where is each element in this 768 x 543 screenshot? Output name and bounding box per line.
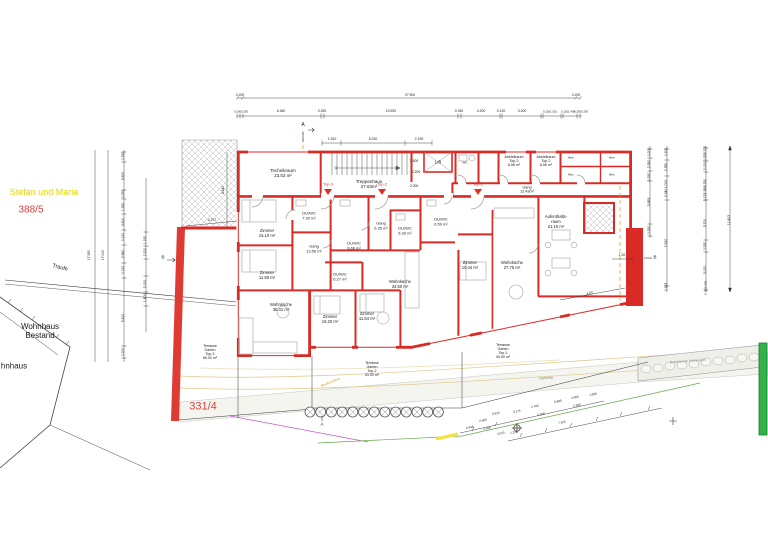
dim-label: 0.250 xyxy=(648,173,652,182)
floor-plan-drawing: Technikraum 23.53 m²Treppenhaus 27.63m²L… xyxy=(0,0,768,543)
dim-label: 0.250 xyxy=(455,110,464,114)
dim-label: 0.200 xyxy=(648,148,652,157)
room-zimmer-1190: Zimmer 11.90 m² xyxy=(259,271,275,281)
unit-marker-top2: Top-2 xyxy=(377,183,387,188)
dim-label: 3.200 xyxy=(477,110,486,114)
existing-house-label-cut: hnhaus xyxy=(1,361,27,370)
parcel-331-4: 331/4 xyxy=(189,401,217,414)
dim-label: 1.000 xyxy=(665,180,669,189)
dim-label: 0.438 xyxy=(466,426,474,431)
dim-label: 2.000 xyxy=(144,280,148,289)
unit-marker-top1: Top-1 xyxy=(473,183,483,188)
room-zimmer-1184: Zimmer 11.84 m² xyxy=(359,312,375,322)
dim-label: 0.2500.250 xyxy=(574,110,588,113)
dim-label: 0.200 xyxy=(665,148,669,157)
room-gang-og: Gang 12.43m² xyxy=(520,186,534,195)
dim-label: 0.250 xyxy=(122,190,126,199)
dim-label: 0.200 xyxy=(122,348,126,357)
room-wc: WC xyxy=(463,161,468,164)
steinmauer-label: Bestehende Steinmauer xyxy=(670,359,707,365)
dim-label: 0.250 xyxy=(648,226,652,235)
room-duwc-730: DU/WC 7.30 m² xyxy=(302,211,316,220)
dim-label: 3.600 xyxy=(122,218,126,227)
dim-label: 2.780 xyxy=(665,163,669,172)
room-duwc-627: DU/WC 6.27 m² xyxy=(333,272,347,281)
room-duwc-650: DU/WC 6.50 m² xyxy=(434,217,448,226)
room-terrasse-top3: Terrasse Garten Top-3 66.00 m² xyxy=(203,344,217,361)
room-abstellraum-top3: Abstellraum Top-3 6.56 m² xyxy=(505,155,524,167)
dim-label: 0.2000.250 xyxy=(234,110,248,113)
room-abst-3: Abst. xyxy=(568,173,574,176)
dim-label: 6.360 xyxy=(277,110,286,114)
dim-label: 2.190 xyxy=(415,138,424,142)
section-a-bottom: A xyxy=(320,421,323,426)
room-zimmer-1044: Zimmer 10.44 m² xyxy=(462,261,479,271)
dim-label: 0.615 xyxy=(492,412,500,417)
dim-label: 2.000 xyxy=(571,396,579,401)
dim-label: 1.150 xyxy=(144,236,148,245)
dim-label: 4.02 xyxy=(586,291,593,297)
gehweg-label: Gehweg xyxy=(539,375,553,380)
dim-label: 0.250 xyxy=(122,152,126,161)
dim-label: 10.920 xyxy=(386,110,396,114)
dim-label: 2.550 xyxy=(648,160,652,169)
dim-label: 4.727 xyxy=(208,219,217,223)
room-abst-1: Abst. xyxy=(568,156,574,159)
dim-label: 1.225 xyxy=(510,431,518,436)
dim-label: 0.800 xyxy=(554,400,562,405)
dim-label: 2.200 xyxy=(537,413,545,418)
room-zimmer-1510: Zimmer 15.10 m² xyxy=(259,229,276,239)
dim-label: 2.000 xyxy=(410,185,419,189)
room-duwc-633: DU/WC 6.33 m² xyxy=(398,226,412,235)
room-wohnkueche-3041: Wohnküche 30.41 m² xyxy=(270,303,292,313)
dim-label: 4.440 xyxy=(222,186,226,195)
room-abst-4: Abst. xyxy=(609,173,615,176)
section-a-top: A xyxy=(301,123,304,129)
room-gang-1356: Gang 13.56 m² xyxy=(306,244,322,253)
room-aufenthaltsraum: Aufenthalts- raum 21.10 m² xyxy=(545,215,567,229)
dim-label: 7.620 xyxy=(665,239,669,248)
dim-label: 2.960 xyxy=(122,250,126,259)
dim-label: 0.200 xyxy=(412,171,421,175)
dim-label: 2.200 xyxy=(483,427,491,432)
dim-label: 2.200 xyxy=(144,248,148,257)
dim-label: 2.000 xyxy=(704,162,708,171)
dim-label: 0.163 xyxy=(665,283,669,292)
dim-label: 3.073 xyxy=(497,432,505,437)
dim-label: 0.250 xyxy=(704,242,708,251)
room-abst-2: Abst. xyxy=(609,156,615,159)
dim-label: 2.340 xyxy=(665,189,669,198)
dim-label: 1.250 xyxy=(122,203,126,212)
dim-label: 0.120 xyxy=(704,193,708,202)
parcel-388-5: 388/5 xyxy=(18,204,43,216)
section-b-right: B xyxy=(653,254,656,259)
dim-label: 0.1630.208 xyxy=(704,281,707,295)
dim-label: 0.1201.400 xyxy=(561,110,575,113)
owner-name: Stefan und Maria xyxy=(10,187,79,197)
room-terrasse-top2: Terrasse Garten Top-2 53.00 m² xyxy=(365,361,379,378)
dim-label: 11.803 xyxy=(728,215,732,225)
room-wohnkueche-3450: Wohnküche 34.50 m² xyxy=(389,280,411,290)
dim-label: 5.893 xyxy=(648,198,652,207)
dim-label: 0.1201.510 xyxy=(543,110,557,113)
dim-label: 1.080 xyxy=(589,393,597,398)
dim-label: 1.20 xyxy=(619,254,626,258)
dim-label: 0.120 xyxy=(497,110,506,114)
baufluchtlinie-label: Baufluchtlinie xyxy=(321,377,341,388)
dim-label: 0.250 xyxy=(318,110,327,114)
dim-label: 1.500 xyxy=(410,160,419,164)
room-lift: Lift xyxy=(435,159,441,164)
dim-label: 5.600 xyxy=(122,172,126,181)
traufe-label: Traufe xyxy=(52,263,69,273)
dim-label: 0.200 xyxy=(236,94,245,98)
dim-label: 0.275 xyxy=(513,410,521,415)
dim-label: 0.120 xyxy=(122,266,126,275)
dim-label: 7.325 xyxy=(558,421,566,426)
room-gang-635: Gang 6.35 m² xyxy=(374,221,388,230)
dim-label: 27.900 xyxy=(405,94,415,98)
plan-text-labels: Technikraum 23.53 m²Treppenhaus 27.63m²L… xyxy=(0,0,768,543)
dim-label: 2.200 xyxy=(573,404,581,409)
dim-label: 3.000 xyxy=(704,266,708,275)
dim-label: 17.350 xyxy=(88,250,92,260)
room-wohnkueche-2775: Wohnküche 27.75 m² xyxy=(501,261,523,271)
dim-label: 0.120 xyxy=(122,233,126,242)
dim-label: 1.800 xyxy=(144,294,148,303)
dim-label: 3.700 xyxy=(704,219,708,228)
dim-label: 3.200 xyxy=(518,110,527,114)
section-b-left: B xyxy=(161,254,164,259)
dim-label: 1.510 xyxy=(328,138,337,142)
room-technikraum: Technikraum 23.53 m² xyxy=(270,168,296,178)
room-terrasse-top1: Terrasse Garten Top-1 40.00 m² xyxy=(496,343,510,360)
dim-label: 2.700 xyxy=(531,405,539,410)
dim-label: 17.000 xyxy=(102,250,106,260)
room-abstellraum-top2: Abstellraum Top-2 6.56 m² xyxy=(537,155,556,167)
dim-label: 5.220 xyxy=(369,138,378,142)
room-duwc-966: DU/WC 9.66 m² xyxy=(347,241,361,250)
dim-label: 0.200 xyxy=(572,94,581,98)
dim-label: 0.250 xyxy=(704,153,708,162)
room-zimmer-1520: Zimmer 15.20 m² xyxy=(322,315,339,325)
unit-marker-top3: Top-3 xyxy=(323,183,333,188)
dim-label: 5.410 xyxy=(122,314,126,323)
dim-label: 2.500 xyxy=(479,419,487,424)
existing-house-label: Wohnhaus Bestand xyxy=(21,322,59,340)
